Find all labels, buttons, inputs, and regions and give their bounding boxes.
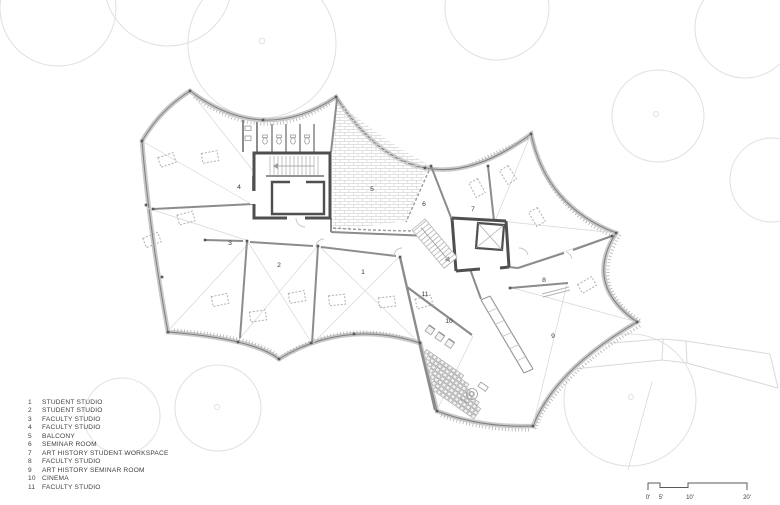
legend-row: 6SEMINAR ROOM bbox=[28, 441, 169, 449]
legend-label: FACULTY STUDIO bbox=[42, 416, 101, 424]
legend-label: ART HISTORY STUDENT WORKSPACE bbox=[42, 450, 169, 458]
core-room bbox=[272, 182, 324, 214]
room-label-8: 8 bbox=[542, 277, 546, 284]
legend-num: 2 bbox=[28, 407, 42, 415]
scale-20: 20' bbox=[743, 495, 751, 501]
room-label-3: 3 bbox=[228, 240, 232, 247]
room-label-6: 6 bbox=[422, 201, 426, 208]
legend-num: 7 bbox=[28, 450, 42, 458]
legend-row: 7ART HISTORY STUDENT WORKSPACE bbox=[28, 450, 169, 458]
legend-label: STUDENT STUDIO bbox=[42, 399, 103, 407]
legend-row: 1STUDENT STUDIO bbox=[28, 399, 169, 407]
legend-row: 4FACULTY STUDIO bbox=[28, 424, 169, 432]
scale-bar: 0' 5' 10' 20' bbox=[646, 483, 751, 501]
legend-num: 9 bbox=[28, 467, 42, 475]
legend-num: 10 bbox=[28, 475, 42, 483]
legend-row: 8FACULTY STUDIO bbox=[28, 458, 169, 466]
door-gap bbox=[250, 191, 257, 204]
legend-num: 6 bbox=[28, 441, 42, 449]
legend-label: FACULTY STUDIO bbox=[42, 484, 101, 492]
legend-num: 8 bbox=[28, 458, 42, 466]
legend-row: 2STUDENT STUDIO bbox=[28, 407, 169, 415]
legend-label: ART HISTORY SEMINAR ROOM bbox=[42, 467, 145, 475]
legend-num: 4 bbox=[28, 424, 42, 432]
legend-num: 1 bbox=[28, 399, 42, 407]
floor-plan-sheet: 1 2 3 4 5 6 7 8 9 10 11 0' 5' 10' 20' 1S… bbox=[0, 0, 780, 505]
legend-label: FACULTY STUDIO bbox=[42, 458, 101, 466]
scale-bar-line bbox=[648, 483, 747, 490]
legend-num: 11 bbox=[28, 484, 42, 492]
legend-row: 5BALCONY bbox=[28, 433, 169, 441]
room-label-4: 4 bbox=[237, 184, 241, 191]
legend-row: 9ART HISTORY SEMINAR ROOM bbox=[28, 467, 169, 475]
legend-num: 5 bbox=[28, 433, 42, 441]
room-label-1: 1 bbox=[361, 269, 365, 276]
scale-10: 10' bbox=[686, 495, 694, 501]
room-label-10: 10 bbox=[445, 318, 453, 325]
legend-label: STUDENT STUDIO bbox=[42, 407, 103, 415]
legend-label: BALCONY bbox=[42, 433, 75, 441]
room-label-11: 11 bbox=[421, 291, 428, 298]
scale-5: 5' bbox=[659, 495, 663, 501]
legend-row: 10CINEMA bbox=[28, 475, 169, 483]
room-label-5: 5 bbox=[370, 186, 374, 193]
legend-label: SEMINAR ROOM bbox=[42, 441, 97, 449]
legend-label: CINEMA bbox=[42, 475, 69, 483]
legend: 1STUDENT STUDIO 2STUDENT STUDIO 3FACULTY… bbox=[28, 399, 169, 492]
legend-row: 3FACULTY STUDIO bbox=[28, 416, 169, 424]
room-label-9: 9 bbox=[551, 333, 555, 340]
legend-label: FACULTY STUDIO bbox=[42, 424, 101, 432]
room-label-2: 2 bbox=[277, 262, 281, 269]
door-gap bbox=[290, 179, 306, 185]
scale-0: 0' bbox=[646, 495, 650, 501]
room-label-7: 7 bbox=[471, 206, 475, 213]
legend-row: 11FACULTY STUDIO bbox=[28, 484, 169, 492]
legend-num: 3 bbox=[28, 416, 42, 424]
site-walkway bbox=[574, 339, 778, 470]
